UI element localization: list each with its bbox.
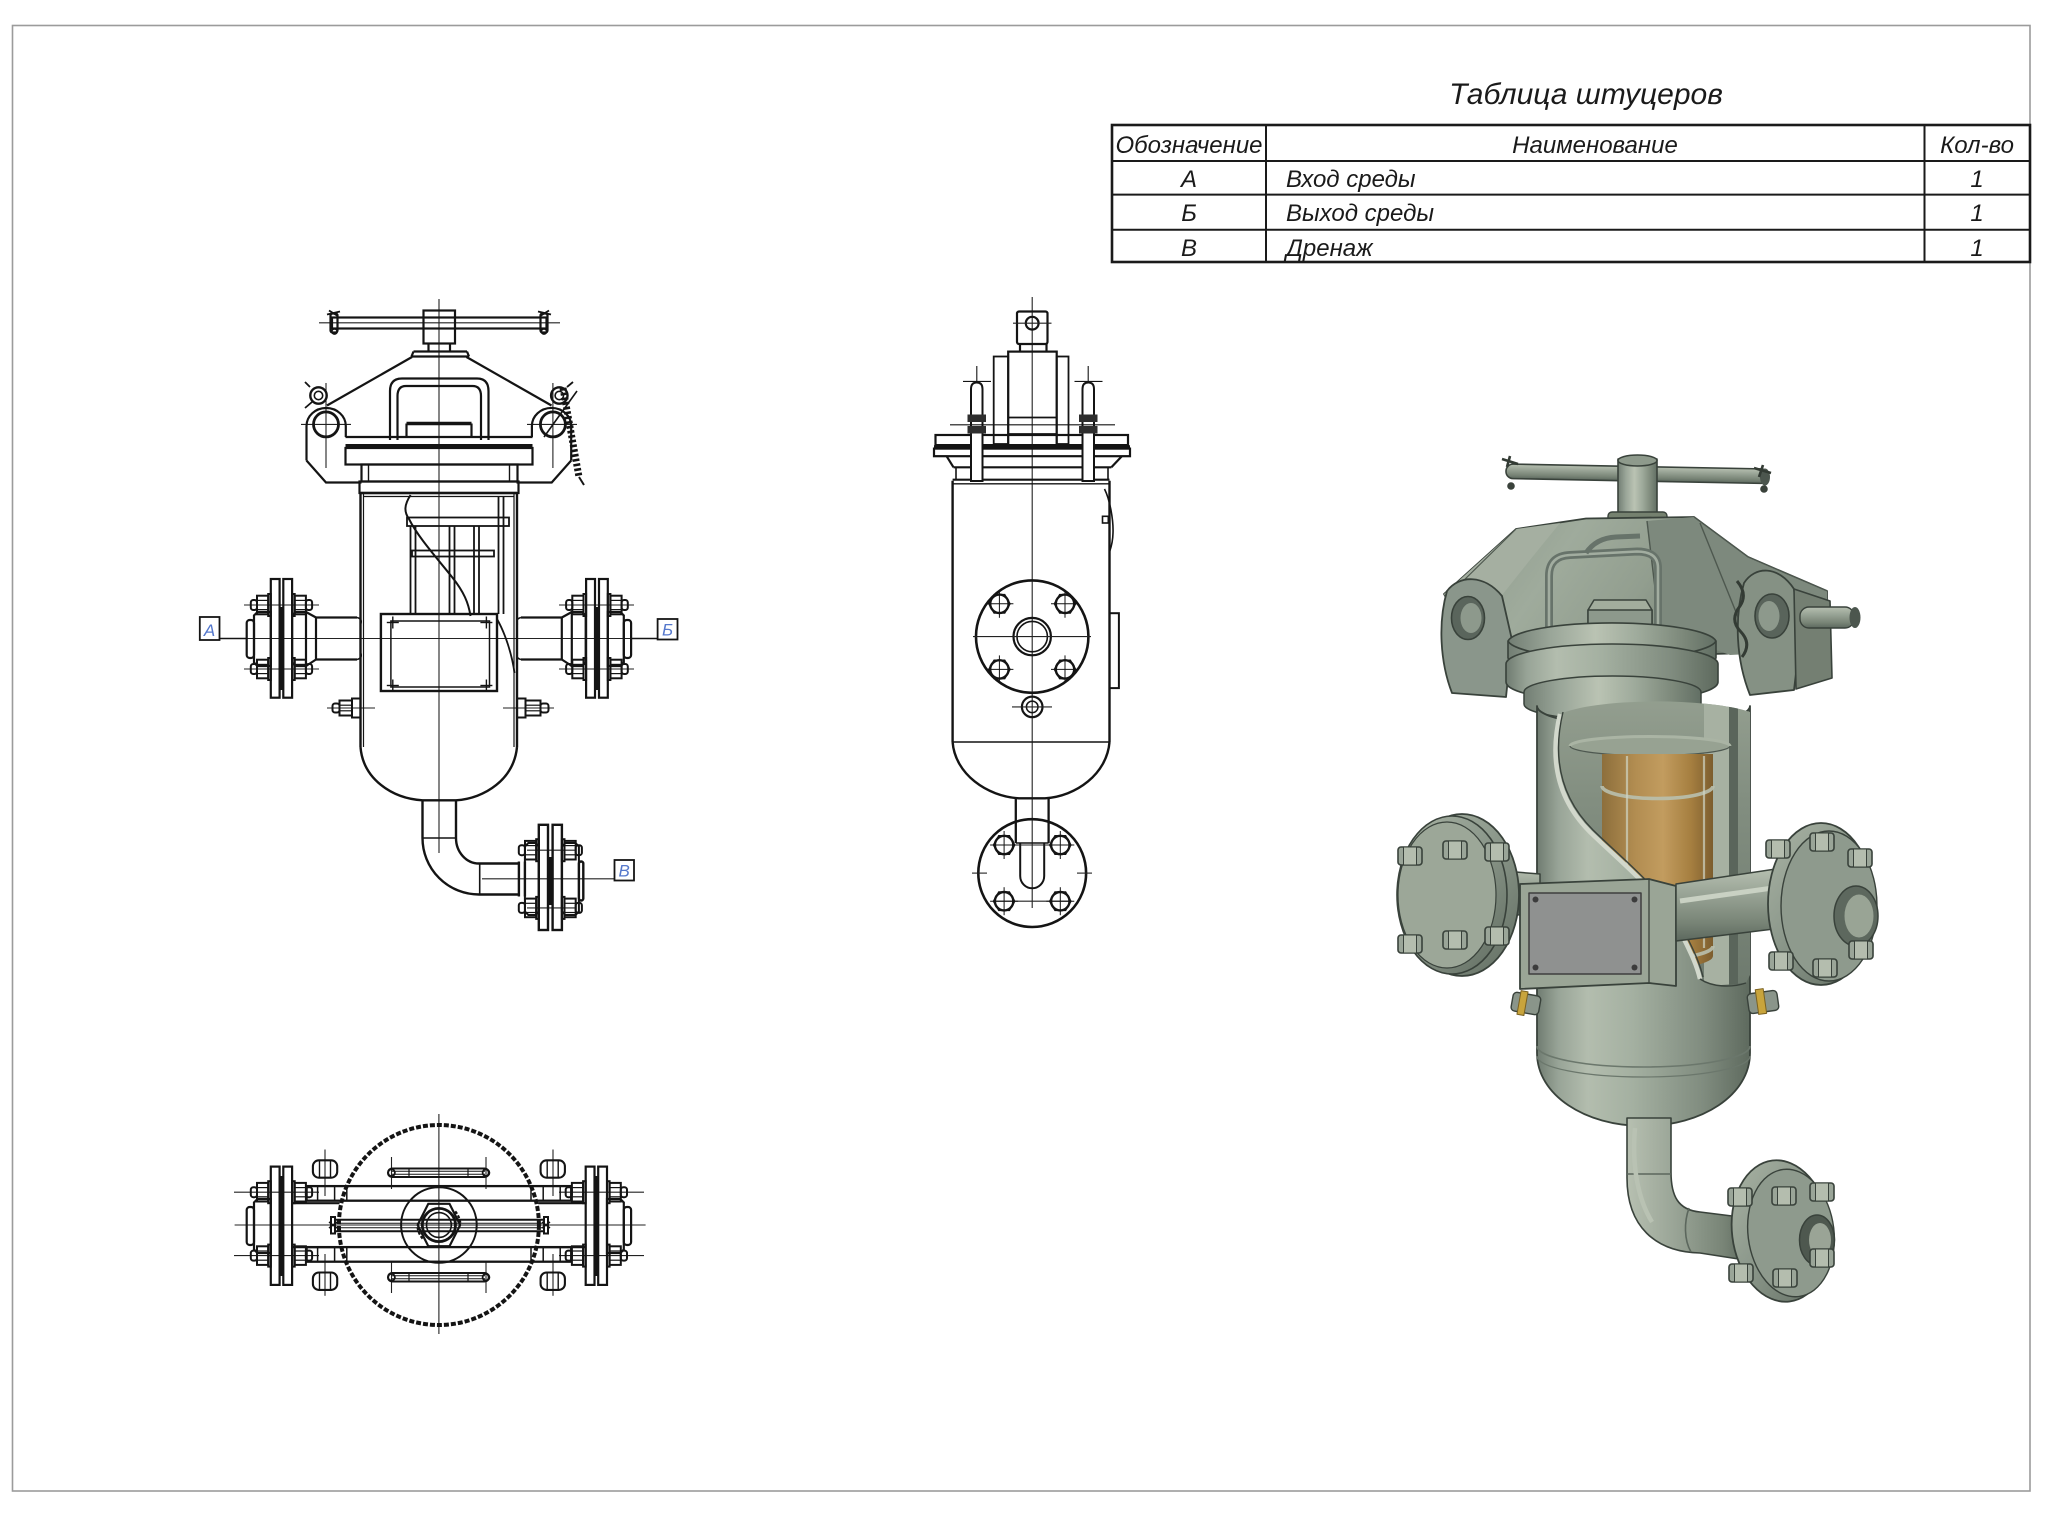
svg-text:Б: Б — [1181, 200, 1197, 227]
svg-text:Б: Б — [662, 621, 673, 640]
svg-text:Наименование: Наименование — [1512, 132, 1678, 159]
svg-text:1: 1 — [1970, 235, 1983, 262]
svg-text:А: А — [203, 621, 215, 640]
svg-text:Таблица штуцеров: Таблица штуцеров — [1449, 78, 1723, 111]
svg-text:В: В — [1181, 235, 1197, 262]
svg-text:Выход среды: Выход среды — [1286, 200, 1434, 227]
svg-text:А: А — [1179, 166, 1197, 193]
svg-text:Обозначение: Обозначение — [1115, 132, 1262, 159]
svg-text:Вход среды: Вход среды — [1286, 166, 1416, 193]
svg-text:Кол-во: Кол-во — [1940, 132, 2014, 159]
svg-text:Дренаж: Дренаж — [1283, 235, 1374, 262]
svg-text:1: 1 — [1970, 200, 1983, 227]
svg-text:В: В — [619, 862, 630, 881]
svg-text:1: 1 — [1970, 166, 1983, 193]
